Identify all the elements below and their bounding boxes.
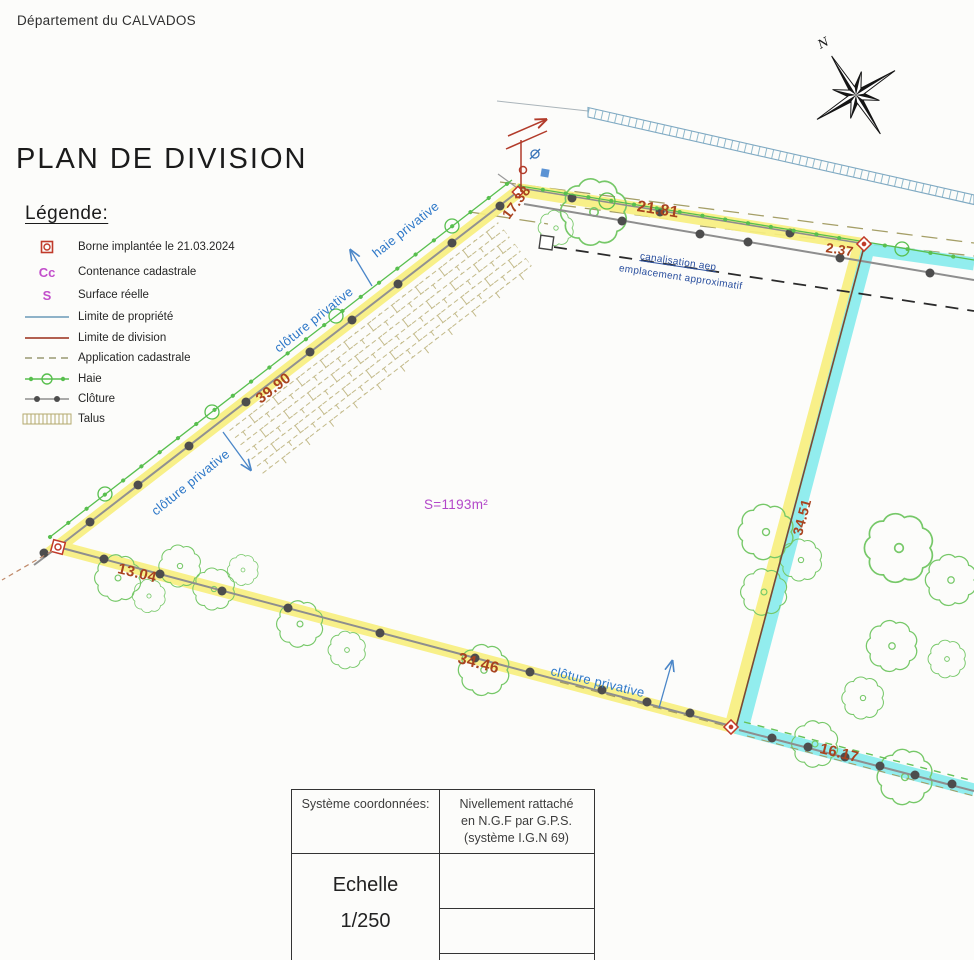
legend-item-limite-propriete: Limite de propriété	[22, 307, 173, 327]
title-block-table: Système coordonnées: Nivellement rattach…	[291, 789, 595, 960]
legend-item-limite-division: Limite de division	[22, 328, 166, 348]
table-line	[439, 908, 594, 909]
road-hatched-band	[497, 101, 974, 205]
table-col2-line1: Nivellement rattaché	[439, 796, 594, 813]
table-col1-header: Système coordonnées:	[292, 797, 439, 811]
limite-de-division-line	[736, 247, 864, 727]
bottom-boundary-lines	[58, 547, 735, 728]
table-col2-header: Nivellement rattaché en N.G.F par G.P.S.…	[439, 796, 594, 847]
plan-de-division-page: Département du CALVADOS PLAN DE DIVISION…	[0, 0, 974, 960]
talus-hatch-icon	[22, 412, 72, 426]
legend-item-label: Haie	[78, 373, 102, 385]
legend-item-label: Borne implantée le 21.03.2024	[78, 241, 235, 253]
legend-item-label: Limite de propriété	[78, 311, 173, 323]
cloture-line-icon	[22, 393, 72, 405]
table-line	[292, 853, 594, 854]
page-title: PLAN DE DIVISION	[16, 143, 307, 176]
surface-value: S=1193m²	[424, 497, 488, 512]
haie-line-icon	[22, 372, 72, 386]
echelle-label: Echelle	[292, 874, 439, 897]
dashed-line-icon	[22, 354, 72, 362]
legend-item-cloture: Clôture	[22, 389, 115, 409]
legend-item-talus: Talus	[22, 409, 105, 429]
pole-symbol	[506, 120, 547, 193]
utility-marker-icons	[530, 149, 550, 178]
legend-item-label: Talus	[78, 413, 105, 425]
legend-title: Légende:	[25, 203, 108, 225]
legend-item-surface: S Surface réelle	[22, 285, 149, 305]
blue-line-icon	[22, 313, 72, 321]
legend-item-label: Contenance cadastrale	[78, 266, 196, 278]
legend-item-label: Clôture	[78, 393, 115, 405]
neighbor-cyan-highlight	[742, 249, 974, 790]
cc-symbol: Cc	[22, 265, 72, 280]
department-label: Département du CALVADOS	[17, 13, 196, 28]
legend-item-borne: Borne implantée le 21.03.2024	[22, 237, 235, 257]
table-line	[439, 953, 594, 954]
legend-item-contenance: Cc Contenance cadastrale	[22, 262, 196, 282]
table-col2-line3: (système I.G.N 69)	[439, 830, 594, 847]
compass-rose-icon	[793, 32, 920, 159]
red-line-icon	[22, 334, 72, 342]
legend-item-label: Limite de division	[78, 332, 166, 344]
echelle-value: 1/250	[292, 910, 439, 933]
legend-item-haie: Haie	[22, 369, 102, 389]
table-col2-line2: en N.G.F par G.P.S.	[439, 813, 594, 830]
s-symbol: S	[22, 288, 72, 303]
legend-item-application-cadastrale: Application cadastrale	[22, 348, 191, 368]
legend-item-label: Application cadastrale	[78, 352, 191, 364]
tree-symbols	[95, 179, 974, 805]
borne-icon	[22, 239, 72, 255]
legend-item-label: Surface réelle	[78, 289, 149, 301]
talus-hatch-band	[227, 220, 535, 479]
